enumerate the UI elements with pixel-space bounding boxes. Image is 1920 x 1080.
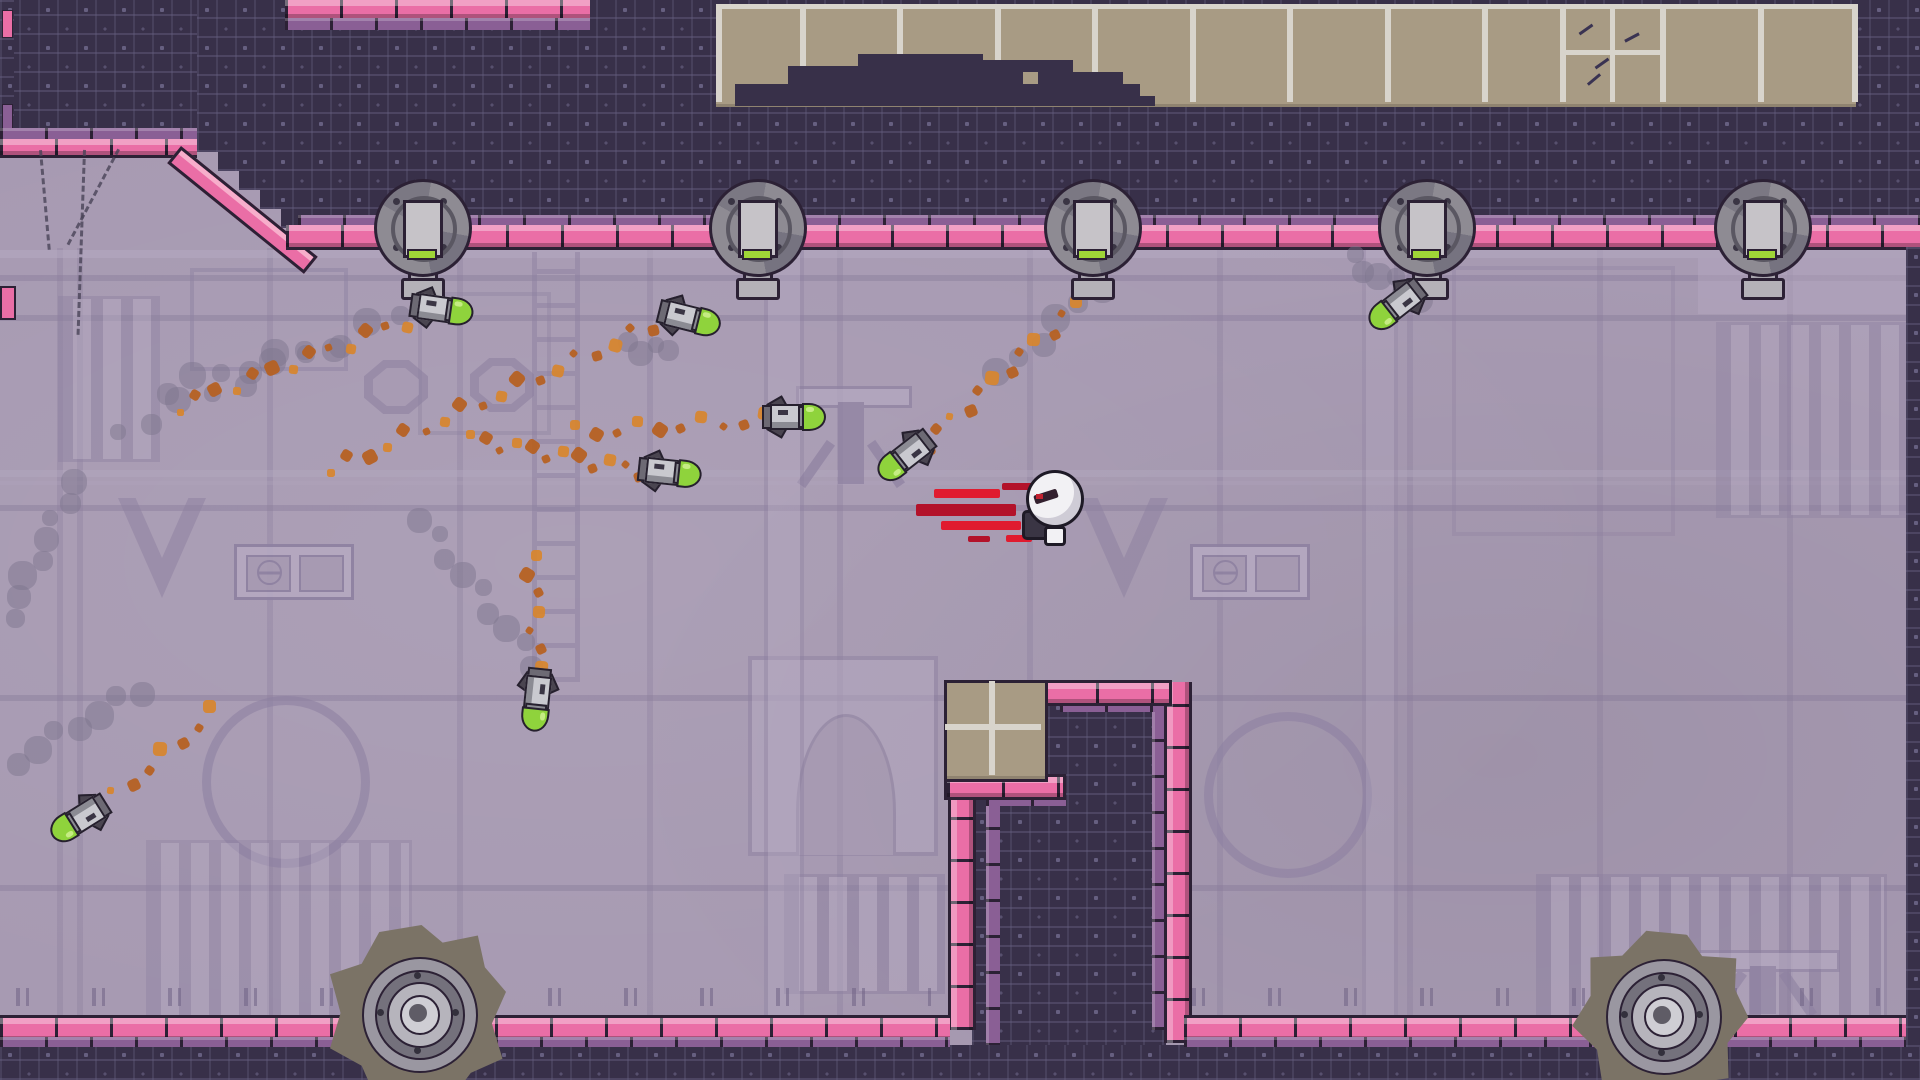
exhaust-flame-puff bbox=[495, 390, 508, 403]
exhaust-flame-puff bbox=[570, 420, 580, 430]
wall-outline-panel bbox=[1452, 266, 1675, 536]
player-character[interactable] bbox=[1022, 468, 1086, 548]
left-ledge-brick bbox=[0, 139, 197, 158]
wall-window-box bbox=[234, 544, 354, 600]
wall-pillar-seam bbox=[1362, 250, 1398, 1016]
missile-window bbox=[539, 684, 545, 694]
exhaust-flame-puff bbox=[1027, 333, 1041, 347]
smoke-puff bbox=[34, 527, 59, 552]
pit-ledge-top bbox=[1038, 680, 1172, 706]
turret-bolt bbox=[393, 198, 400, 205]
turret-green-light bbox=[742, 249, 772, 260]
gear-hub-bolt bbox=[377, 1009, 384, 1016]
exhaust-flame-puff bbox=[695, 410, 708, 423]
ceiling-divider bbox=[716, 4, 722, 102]
hanging-block-caps bbox=[285, 18, 590, 30]
wall-light-panel bbox=[1698, 258, 1920, 314]
missile-window bbox=[778, 410, 788, 415]
exhaust-flame-puff bbox=[327, 469, 335, 477]
smoke-puff bbox=[157, 383, 179, 405]
exhaust-flame-puff bbox=[533, 605, 546, 618]
turret-base-flange bbox=[736, 278, 780, 300]
exhaust-flame-puff bbox=[383, 442, 392, 451]
turret-bolt bbox=[1063, 198, 1070, 205]
wall-tank-circle bbox=[1204, 712, 1372, 878]
smoke-puff bbox=[407, 508, 432, 533]
exhaust-flame-puff bbox=[233, 387, 241, 395]
exhaust-flame-puff bbox=[106, 787, 114, 795]
ceiling-window-block bbox=[944, 680, 1048, 782]
player-visor-glint bbox=[1036, 494, 1043, 499]
smoke-puff bbox=[42, 510, 58, 526]
gear-hub-bolt bbox=[1696, 1011, 1703, 1018]
exhaust-flame-puff bbox=[632, 415, 644, 427]
arch-opening bbox=[796, 714, 897, 855]
wall-window-box bbox=[1190, 544, 1310, 600]
gear-hub-bolt bbox=[1658, 1049, 1665, 1056]
gear-hub-ring bbox=[409, 1004, 427, 1022]
smoke-puff bbox=[475, 579, 492, 596]
debris-mound-block bbox=[1038, 72, 1123, 86]
ceiling-divider bbox=[1758, 4, 1764, 102]
wall-octagon-port bbox=[364, 360, 428, 414]
exhaust-flame-puff bbox=[607, 337, 623, 353]
debris-mound-block bbox=[958, 60, 1073, 72]
right-edge-wall-strip bbox=[1906, 247, 1920, 1047]
pit-wall-right bbox=[1164, 682, 1192, 1043]
window-pane-blank bbox=[1255, 555, 1300, 592]
smoke-puff bbox=[110, 424, 126, 440]
gauge-circle-minus-icon bbox=[257, 560, 282, 584]
ceiling-divider bbox=[1852, 4, 1858, 102]
ceiling-divider bbox=[1190, 4, 1196, 102]
exhaust-flame-puff bbox=[152, 741, 167, 756]
exhaust-flame-puff bbox=[177, 409, 184, 416]
smoke-puff bbox=[60, 493, 81, 514]
missile-nose-highlight bbox=[454, 301, 463, 307]
pedestal-column bbox=[838, 402, 864, 484]
smoke-puff bbox=[44, 721, 63, 740]
player-speed-streak bbox=[941, 521, 1021, 530]
wall-pillar-seam bbox=[764, 250, 804, 1016]
turret-bolt bbox=[728, 198, 735, 205]
wall-slotted-panel bbox=[784, 874, 945, 994]
ceiling-divider bbox=[1287, 4, 1293, 102]
ceiling-divider bbox=[1482, 4, 1488, 102]
turret-green-light bbox=[1747, 249, 1777, 260]
floor-tick-marks-right bbox=[1192, 988, 1882, 1006]
smoke-puff bbox=[24, 736, 52, 764]
turret-base-flange bbox=[1741, 278, 1785, 300]
missile-window bbox=[654, 464, 664, 470]
smoke-puff bbox=[33, 551, 53, 571]
smoke-puff bbox=[517, 633, 535, 651]
window-divider-horizontal bbox=[945, 724, 1041, 730]
pit-wall-left bbox=[948, 776, 976, 1030]
gear-hub-bolt bbox=[452, 1009, 459, 1016]
exhaust-flame-puff bbox=[345, 343, 356, 354]
exhaust-flame-puff bbox=[946, 412, 954, 420]
turret-bolt bbox=[1733, 198, 1740, 205]
exhaust-flame-puff bbox=[466, 430, 475, 439]
smoke-puff bbox=[493, 615, 520, 642]
pit-inner-rim-left bbox=[986, 806, 1000, 1046]
smoke-puff bbox=[85, 701, 114, 730]
smoke-puff bbox=[61, 469, 87, 495]
gear-hub-bolt bbox=[414, 972, 421, 979]
smoke-puff bbox=[432, 526, 448, 542]
wall-octagon-inner bbox=[373, 368, 419, 406]
smoke-puff bbox=[6, 609, 25, 628]
missile-nose-highlight bbox=[806, 407, 814, 412]
smoke-puff bbox=[179, 362, 206, 389]
player-foot bbox=[1044, 526, 1066, 546]
gauge-circle-minus-icon bbox=[1213, 560, 1238, 584]
smoke-puff bbox=[658, 340, 679, 361]
gear-hub-bolt bbox=[414, 1047, 421, 1054]
smoke-puff bbox=[141, 414, 162, 435]
ceiling-divider bbox=[1660, 4, 1666, 102]
turret-green-light bbox=[1411, 249, 1441, 260]
floor-caps-right bbox=[1184, 1037, 1920, 1047]
player-speed-streak bbox=[968, 536, 990, 542]
player-speed-streak bbox=[916, 504, 1016, 516]
turret-bolt bbox=[1397, 198, 1404, 205]
missile-nose-highlight bbox=[682, 464, 690, 470]
smoke-puff bbox=[106, 686, 126, 706]
ceiling-divider bbox=[1385, 4, 1391, 102]
turret-green-light bbox=[407, 249, 437, 260]
wall-slotted-panel bbox=[58, 296, 160, 462]
exhaust-flame-puff bbox=[531, 550, 542, 561]
wall-slotted-panel bbox=[1716, 322, 1912, 518]
wall-edge-light bbox=[2, 10, 13, 38]
window-pane-blank bbox=[299, 555, 344, 592]
smoke-puff bbox=[130, 682, 155, 707]
left-ledge-caps bbox=[0, 128, 197, 139]
smoke-puff bbox=[212, 364, 230, 382]
game-viewport[interactable] bbox=[0, 0, 1920, 1080]
ceiling-quad-line bbox=[1565, 50, 1660, 55]
gear-hub-bolt bbox=[1621, 1011, 1628, 1018]
homing-missile bbox=[637, 453, 700, 487]
gear-hub-bolt bbox=[1658, 974, 1665, 981]
exhaust-flame-puff bbox=[203, 700, 216, 713]
turret-green-light bbox=[1077, 249, 1107, 260]
exhaust-flame-puff bbox=[557, 445, 569, 457]
homing-missile bbox=[762, 401, 822, 429]
player-speed-streak bbox=[934, 489, 1000, 498]
exhaust-flame-puff bbox=[512, 438, 523, 449]
exhaust-flame-puff bbox=[603, 453, 617, 467]
gear-hub-ring bbox=[1653, 1006, 1671, 1024]
window-pane-gauge bbox=[246, 555, 291, 592]
hanging-block-brick bbox=[285, 0, 590, 18]
window-pane-gauge bbox=[1202, 555, 1247, 592]
smoke-puff bbox=[450, 562, 476, 588]
exhaust-flame-puff bbox=[984, 370, 999, 385]
exhaust-flame-puff bbox=[439, 416, 450, 427]
turret-base-flange bbox=[1071, 278, 1115, 300]
top-left-dark-wall bbox=[0, 0, 197, 130]
debris-mound-block bbox=[735, 96, 1155, 106]
left-wall-nub bbox=[0, 286, 16, 320]
wall-chevron-mark bbox=[118, 498, 206, 598]
wall-chevron-mark bbox=[1080, 498, 1168, 598]
